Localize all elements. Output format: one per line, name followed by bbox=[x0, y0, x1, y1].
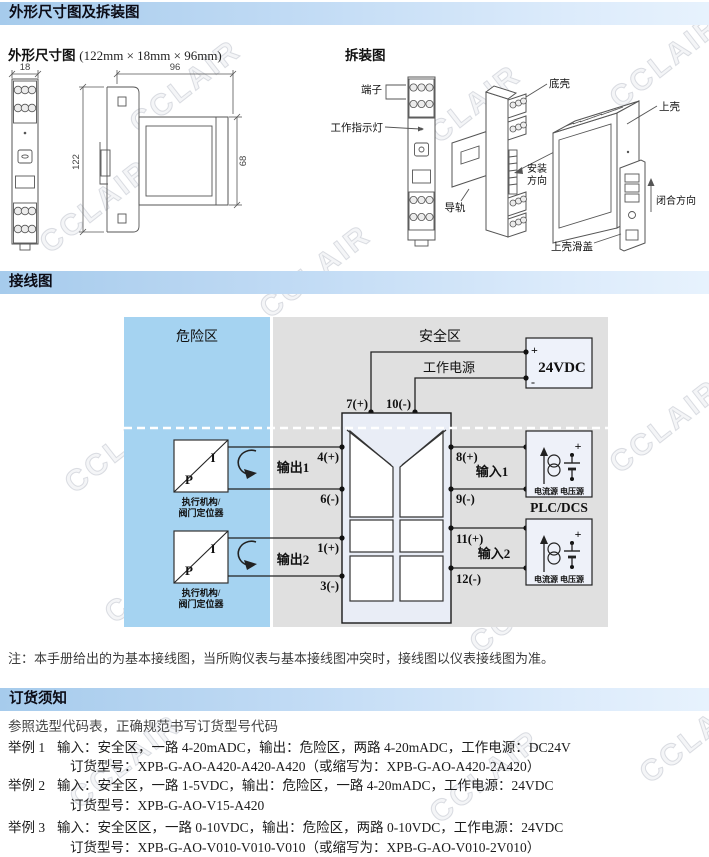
terminal-3: 3(-) bbox=[320, 579, 339, 593]
pi-i-label: I bbox=[210, 541, 215, 556]
example-tag: 举例 2 bbox=[8, 774, 57, 794]
dim-face-label: 68 bbox=[238, 156, 249, 167]
terminal-6: 6(-) bbox=[320, 492, 339, 506]
dim-height-label: 122 bbox=[71, 154, 82, 170]
document-page: CCLAIR CCLAIR CCLAIR CCLAIR CCLAIR CCLAI… bbox=[0, 0, 709, 857]
source-type-label: 电流源 电压源 bbox=[534, 574, 584, 584]
source-type-label: 电流源 电压源 bbox=[534, 486, 584, 496]
source-plus: + bbox=[575, 527, 582, 541]
terminal-1: 1(+) bbox=[317, 541, 339, 555]
output1-label: 输出1 bbox=[277, 460, 310, 475]
slide-cover-label: 上壳滑盖 bbox=[551, 240, 593, 253]
actuator-label: 阀门定位器 bbox=[178, 507, 224, 518]
install-direction-label: 方向 bbox=[527, 174, 547, 187]
pi-p-label: P bbox=[185, 472, 193, 487]
terminal-7: 7(+) bbox=[346, 397, 368, 411]
bottom-shell-label: 底壳 bbox=[549, 77, 570, 90]
example-tag: 举例 3 bbox=[8, 816, 57, 836]
wiring-diagram: 危险区 安全区 24VDC + - 工作电源 7(+) 10(-) I P 执行… bbox=[0, 312, 709, 632]
hazard-zone-label: 危险区 bbox=[176, 329, 218, 345]
terminal-12: 12(-) bbox=[456, 572, 481, 586]
actuator-label: 执行机构/ bbox=[182, 496, 221, 507]
power-supply-value: 24VDC bbox=[538, 360, 586, 376]
example-desc: 输入：安全区区，一路 0-10VDC，输出：危险区，两路 0-10VDC，工作电… bbox=[57, 820, 563, 835]
ordering-intro: 参照选型代码表，正确规范书写订货型号代码 bbox=[8, 715, 278, 735]
terminal-10: 10(-) bbox=[386, 397, 411, 411]
rail-label: 导轨 bbox=[445, 201, 466, 214]
ordering-example-2: 举例 2输入：安全区，一路 1-5VDC，输出：危险区，一路 4-20mADC，… bbox=[8, 774, 554, 794]
example-tag: 举例 1 bbox=[8, 736, 57, 756]
example-desc: 输入：安全区，一路 1-5VDC，输出：危险区，一路 4-20mADC，工作电源… bbox=[57, 778, 554, 793]
power-label: 工作电源 bbox=[423, 360, 475, 375]
actuator-label: 阀门定位器 bbox=[178, 598, 224, 609]
example-desc: 输入：安全区，一路 4-20mADC，输出：危险区，两路 4-20mADC，工作… bbox=[57, 740, 571, 755]
section-header-ordering: 订货须知 bbox=[0, 688, 709, 711]
close-direction-label: 闭合方向 bbox=[656, 194, 696, 207]
ordering-model-3: 订货型号：XPB-G-AO-V010-V010-V010（或缩写为：XPB-G-… bbox=[70, 836, 540, 856]
pi-p-label: P bbox=[185, 563, 193, 578]
dim-width-label: 18 bbox=[20, 62, 31, 73]
terminal-11: 11(+) bbox=[456, 532, 483, 546]
section-header-wiring: 接线图 bbox=[0, 271, 709, 294]
indicator-label: 工作指示灯 bbox=[331, 121, 384, 134]
pi-i-label: I bbox=[210, 450, 215, 465]
disassembly-drawing: 端子 工作指示灯 导轨 底壳 安装 方向 bbox=[280, 60, 709, 265]
actuator-label: 执行机构/ bbox=[182, 587, 221, 598]
dimension-drawing: 18 96 122 68 bbox=[0, 60, 270, 260]
section-header-dimensions: 外形尺寸图及拆装图 bbox=[0, 2, 709, 25]
output2-label: 输出2 bbox=[277, 552, 310, 567]
terminal-4: 4(+) bbox=[317, 450, 339, 464]
input2-label: 输入2 bbox=[478, 546, 511, 561]
ordering-example-3: 举例 3输入：安全区区，一路 0-10VDC，输出：危险区，两路 0-10VDC… bbox=[8, 816, 563, 836]
ordering-example-1: 举例 1输入：安全区，一路 4-20mADC，输出：危险区，两路 4-20mAD… bbox=[8, 736, 571, 756]
ordering-model-2: 订货型号：XPB-G-AO-V15-A420 bbox=[70, 794, 264, 814]
top-shell-label: 上壳 bbox=[659, 100, 680, 113]
dim-depth-label: 96 bbox=[170, 62, 181, 73]
power-plus: + bbox=[531, 343, 538, 357]
install-direction-label: 安装 bbox=[527, 162, 547, 175]
safe-zone-label: 安全区 bbox=[419, 328, 461, 345]
terminal-8: 8(+) bbox=[456, 450, 478, 464]
wiring-note: 注：本手册给出的为基本接线图，当所购仪表与基本接线图冲突时，接线图以仪表接线图为… bbox=[8, 648, 554, 667]
input1-label: 输入1 bbox=[476, 464, 509, 479]
power-minus: - bbox=[531, 375, 535, 389]
plc-dcs-label: PLC/DCS bbox=[530, 500, 588, 515]
terminal-9: 9(-) bbox=[456, 492, 475, 506]
source-plus: + bbox=[575, 439, 582, 453]
ordering-model-1: 订货型号：XPB-G-AO-A420-A420-A420（或缩写为：XPB-G-… bbox=[70, 755, 540, 775]
terminal-label: 端子 bbox=[361, 83, 382, 96]
